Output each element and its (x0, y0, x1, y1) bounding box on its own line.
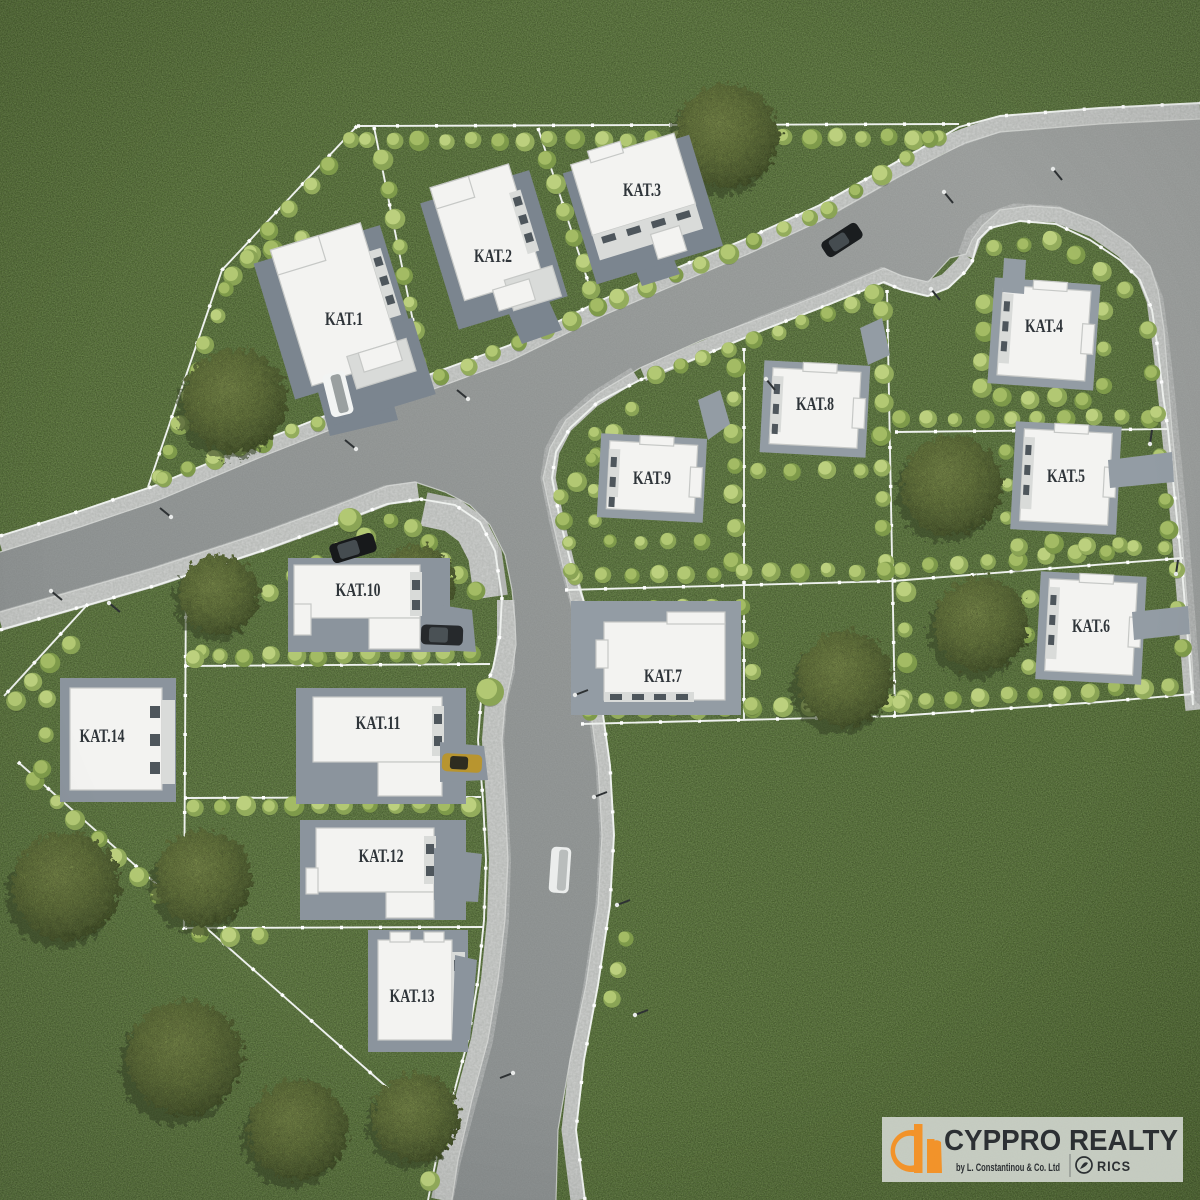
svg-text:by L. Constantinou & Co. Ltd: by L. Constantinou & Co. Ltd (956, 1162, 1060, 1174)
svg-text:CYPPRO REALTY: CYPPRO REALTY (944, 1125, 1178, 1157)
svg-text:RICS: RICS (1097, 1158, 1131, 1174)
